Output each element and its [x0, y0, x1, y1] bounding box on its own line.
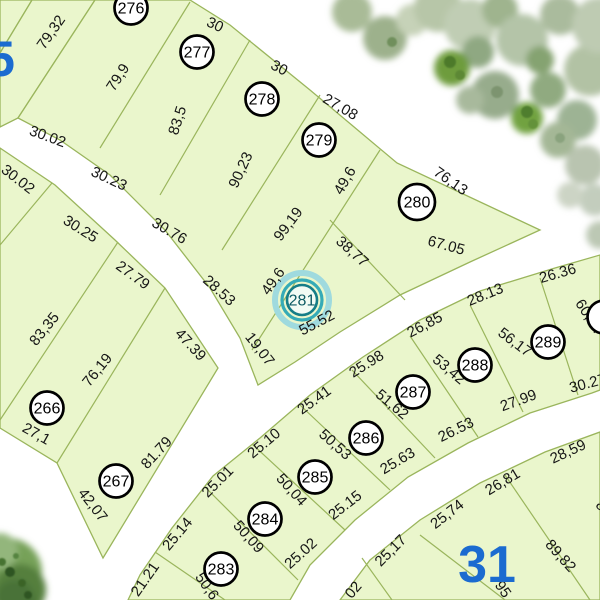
svg-text:267: 267 [103, 474, 130, 491]
svg-text:284: 284 [252, 512, 279, 529]
svg-text:286: 286 [353, 431, 380, 448]
svg-text:279: 279 [306, 133, 333, 150]
svg-text:280: 280 [404, 195, 431, 212]
parcel-number-badge[interactable]: 278 [246, 83, 279, 116]
parcel-number-badge[interactable]: 289 [532, 326, 565, 359]
parcel-number-badge[interactable]: 277 [181, 36, 214, 69]
parcel-number-badge[interactable]: 283 [205, 553, 238, 586]
parcel-number-badge[interactable]: 276 [115, 0, 148, 25]
block-number-label: 31 [458, 536, 516, 594]
svg-text:276: 276 [118, 1, 145, 18]
parcel-number-badge[interactable]: 288 [459, 349, 492, 382]
svg-text:281: 281 [289, 293, 316, 310]
parcel-number-badge[interactable]: 279 [303, 124, 336, 157]
svg-text:287: 287 [400, 385, 427, 402]
svg-text:278: 278 [249, 92, 276, 109]
parcel-number-badge[interactable]: 280 [399, 184, 435, 220]
parcel-number-badge-selected[interactable]: 281 [287, 285, 317, 315]
parcel-number-badge[interactable]: 266 [31, 392, 64, 425]
svg-text:283: 283 [208, 562, 235, 579]
plat-map-stage: 79,3279,9303027,0876,1330.0230.2330.7628… [0, 0, 600, 600]
svg-text:285: 285 [302, 470, 329, 487]
svg-text:277: 277 [184, 45, 211, 62]
parcel-number-badge[interactable]: 284 [249, 503, 282, 536]
svg-text:289: 289 [535, 335, 562, 352]
parcel-number-badge[interactable]: 267 [100, 465, 133, 498]
tree-bottom-left-icon [0, 533, 46, 600]
svg-text:266: 266 [34, 401, 61, 418]
block-number-label: 5 [0, 31, 15, 87]
plat-map: 79,3279,9303027,0876,1330.0230.2330.7628… [0, 0, 600, 600]
parcel-number-badge[interactable]: 287 [397, 376, 430, 409]
parcel-number-badge[interactable]: 285 [299, 461, 332, 494]
parcel-number-badge[interactable]: 286 [350, 422, 383, 455]
svg-text:288: 288 [462, 358, 489, 375]
